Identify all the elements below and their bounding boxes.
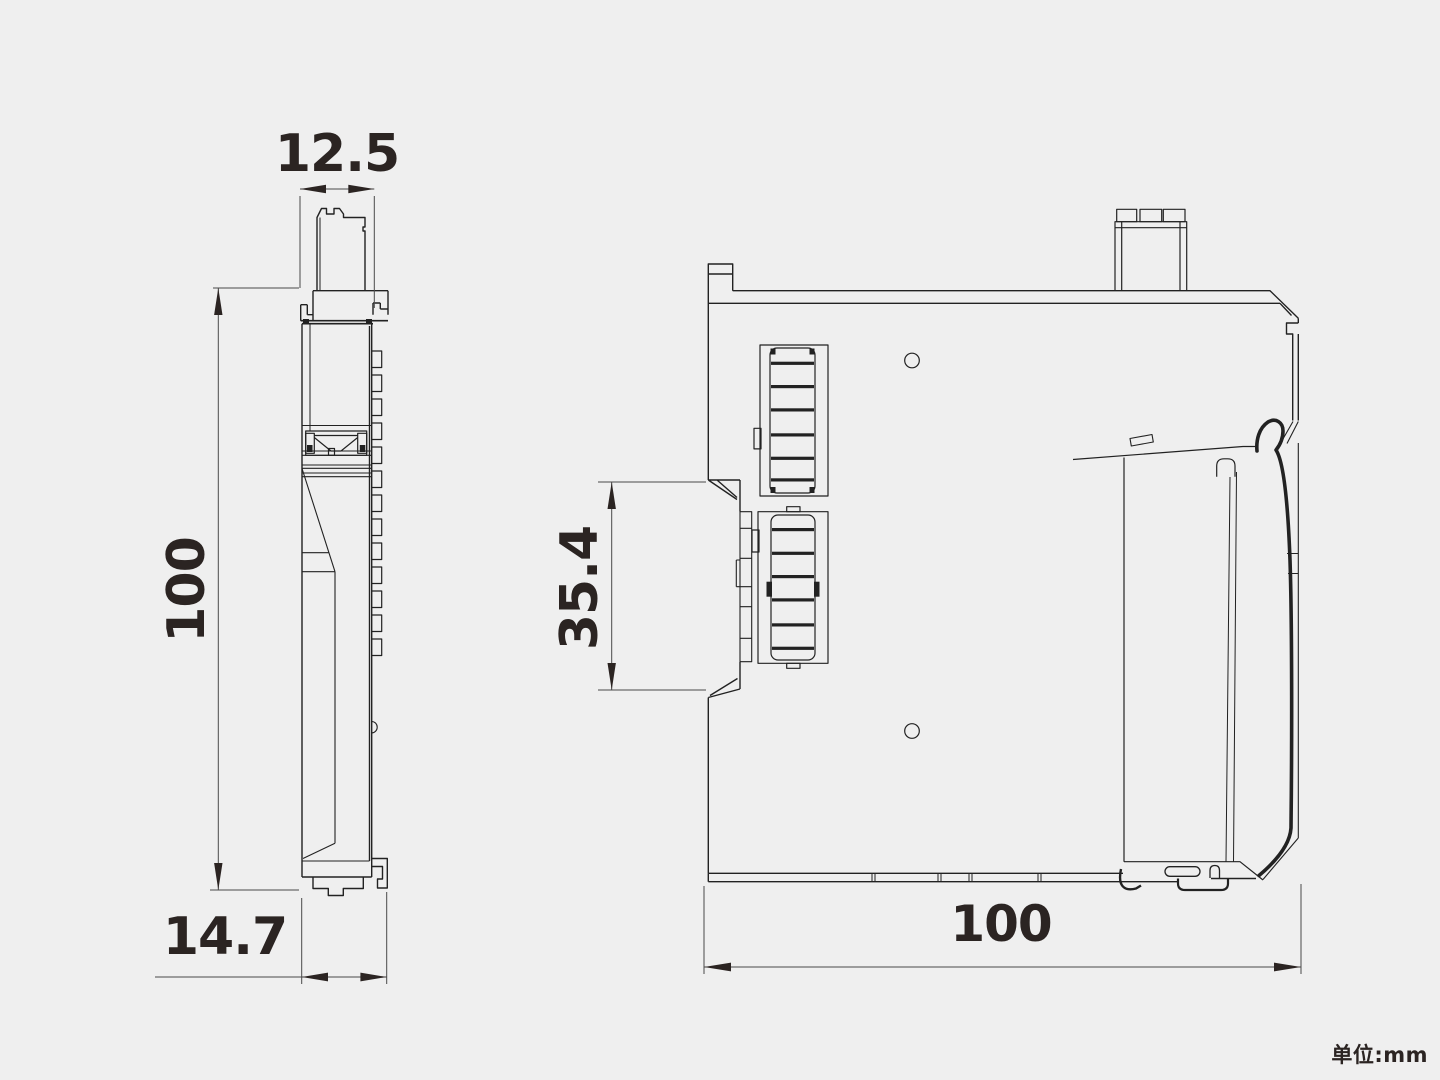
- front-view-flange: [301, 291, 388, 324]
- side-view-cover-panel: [1073, 447, 1263, 881]
- front-view-din-latch: [306, 431, 367, 455]
- front-view-body: [302, 324, 387, 896]
- dim-connector-height-lines: [598, 482, 706, 690]
- dim-label-left-height: 100: [159, 505, 215, 675]
- side-view-screw-holes: [905, 353, 920, 738]
- drawing-sheet: 12.5 100 14.7 35.4 100 单位:mm: [0, 0, 1440, 1080]
- side-view-terminal-block-lower: [752, 507, 828, 669]
- dim-label-top-width: 12.5: [262, 126, 412, 182]
- front-profile-view: [301, 209, 388, 896]
- side-view: [708, 209, 1298, 890]
- front-view-terminal-tabs: [372, 351, 382, 656]
- dim-label-bottom-depth: 14.7: [145, 909, 305, 965]
- front-view-top-tab: [317, 209, 365, 291]
- dim-label-connector-height: 35.4: [552, 503, 608, 673]
- side-view-top-connector: [1115, 209, 1187, 290]
- side-view-label-marker: [1130, 435, 1153, 447]
- dim-label-side-width: 100: [931, 898, 1071, 950]
- side-view-terminal-block-upper: [754, 345, 828, 496]
- side-view-housing-outline: [708, 264, 1298, 882]
- dim-left-height-lines: [210, 288, 299, 890]
- side-view-din-spring-clip: [1257, 420, 1298, 879]
- side-view-bottom-latch: [1120, 866, 1228, 891]
- dimension-lines: [155, 189, 1301, 984]
- units-note: 单位:mm: [1280, 1042, 1428, 1068]
